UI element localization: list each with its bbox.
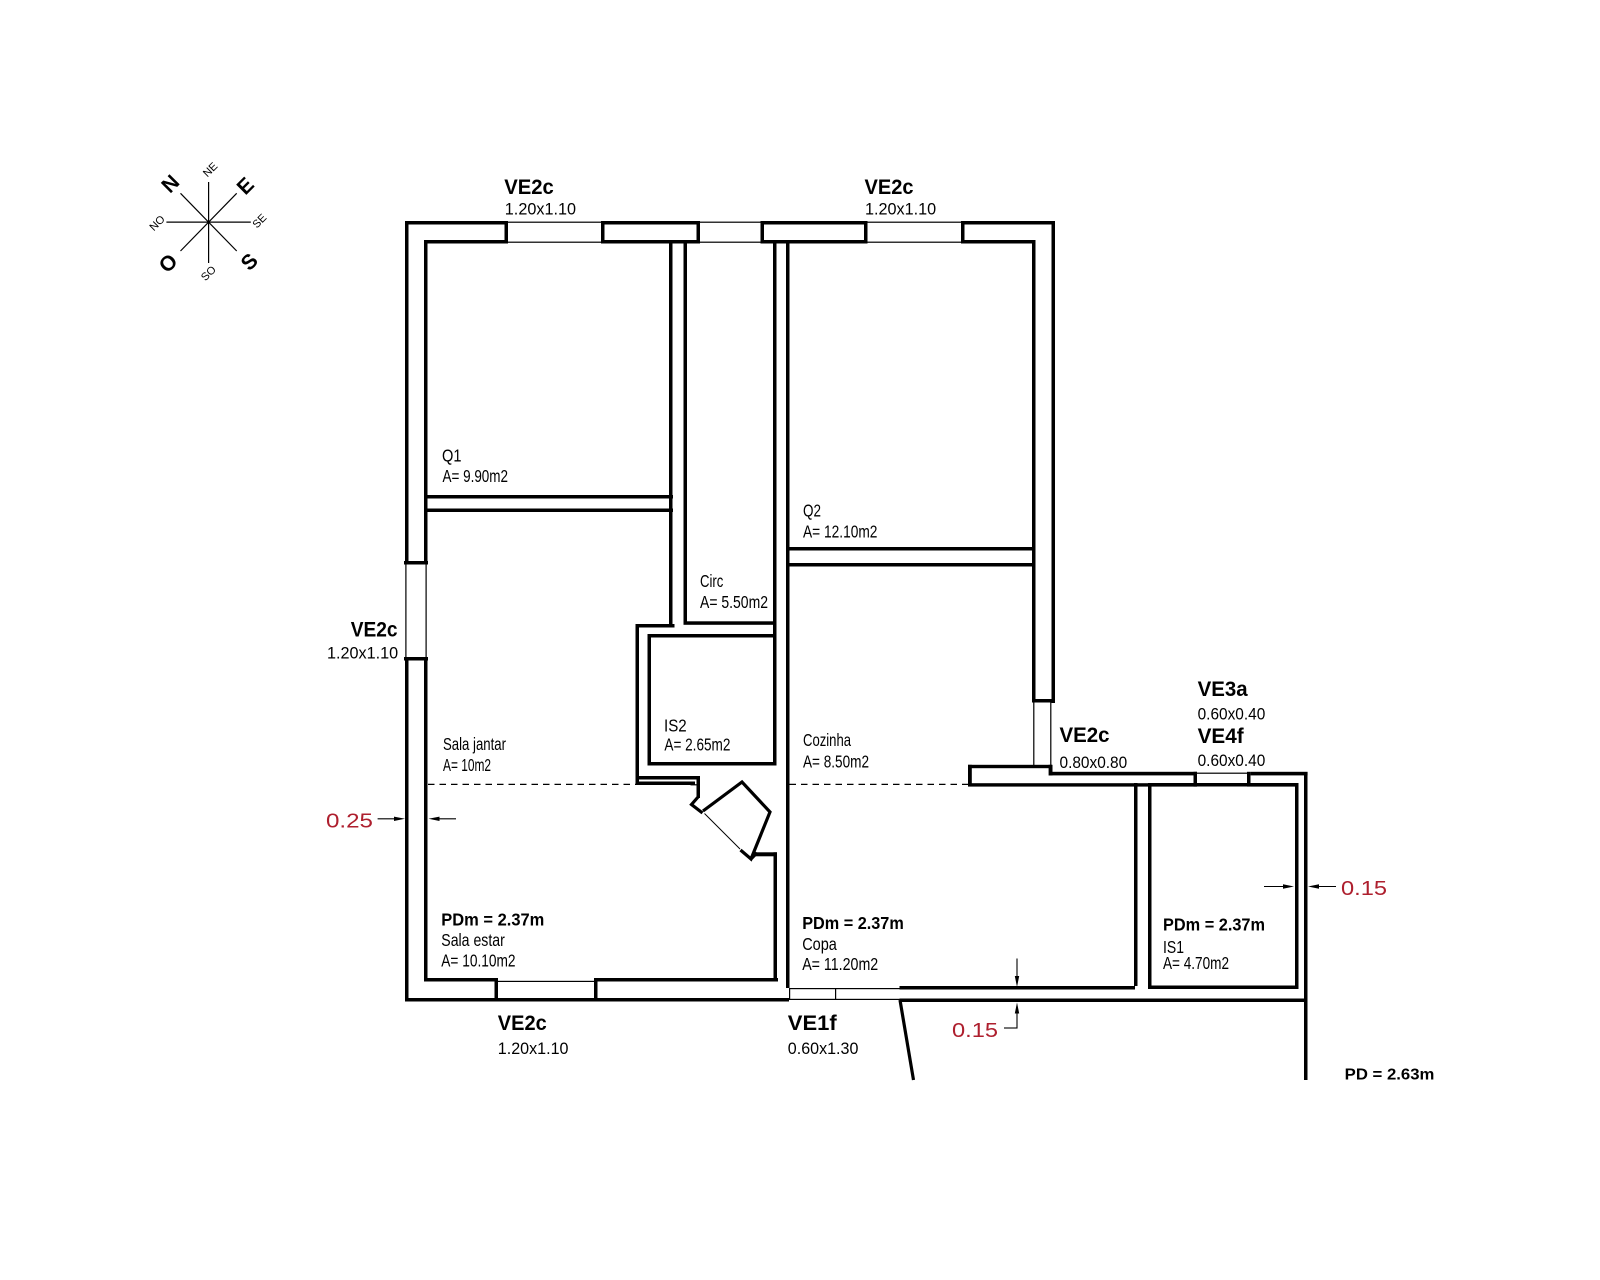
svg-text:A= 8.50m2: A= 8.50m2 bbox=[803, 752, 869, 772]
svg-text:A= 5.50m2: A= 5.50m2 bbox=[700, 592, 768, 612]
svg-text:VE2c: VE2c bbox=[1060, 724, 1110, 747]
svg-text:0.80x0.80: 0.80x0.80 bbox=[1060, 753, 1128, 772]
svg-text:VE1f: VE1f bbox=[788, 1012, 838, 1035]
svg-text:0.60x1.30: 0.60x1.30 bbox=[788, 1039, 859, 1058]
svg-text:0.60x0.40: 0.60x0.40 bbox=[1198, 751, 1266, 770]
svg-text:IS2: IS2 bbox=[664, 716, 687, 736]
svg-text:1.20x1.10: 1.20x1.10 bbox=[498, 1039, 569, 1058]
svg-text:0.60x0.40: 0.60x0.40 bbox=[1198, 705, 1266, 724]
svg-text:PDm = 2.37m: PDm = 2.37m bbox=[802, 913, 904, 933]
svg-text:VE3a: VE3a bbox=[1198, 678, 1248, 701]
svg-text:A= 11.20m2: A= 11.20m2 bbox=[802, 954, 878, 974]
svg-text:1.20x1.10: 1.20x1.10 bbox=[865, 200, 936, 219]
svg-text:VE2c: VE2c bbox=[504, 176, 554, 199]
svg-text:Sala jantar: Sala jantar bbox=[443, 734, 506, 754]
svg-text:A= 9.90m2: A= 9.90m2 bbox=[443, 466, 509, 486]
svg-text:Q1: Q1 bbox=[442, 446, 462, 466]
svg-text:VE2c: VE2c bbox=[498, 1012, 547, 1035]
svg-text:VE2c: VE2c bbox=[351, 619, 398, 642]
svg-text:VE4f: VE4f bbox=[1198, 725, 1245, 748]
svg-text:A= 12.10m2: A= 12.10m2 bbox=[803, 522, 877, 542]
svg-text:Cozinha: Cozinha bbox=[803, 730, 851, 750]
svg-text:0.25: 0.25 bbox=[326, 811, 373, 833]
svg-text:PDm = 2.37m: PDm = 2.37m bbox=[441, 910, 544, 930]
svg-text:VE2c: VE2c bbox=[865, 176, 914, 199]
svg-text:1.20x1.10: 1.20x1.10 bbox=[505, 200, 576, 219]
svg-text:PDm = 2.37m: PDm = 2.37m bbox=[1163, 915, 1265, 935]
svg-text:Q2: Q2 bbox=[803, 501, 821, 521]
svg-text:Copa: Copa bbox=[802, 934, 837, 954]
svg-text:Circ: Circ bbox=[700, 571, 723, 591]
svg-text:0.15: 0.15 bbox=[1341, 878, 1387, 900]
svg-text:A= 2.65m2: A= 2.65m2 bbox=[664, 735, 730, 755]
svg-text:A= 10.10m2: A= 10.10m2 bbox=[441, 950, 515, 970]
svg-text:0.15: 0.15 bbox=[952, 1020, 998, 1042]
svg-text:A= 4.70m2: A= 4.70m2 bbox=[1163, 953, 1229, 973]
svg-text:Sala estar: Sala estar bbox=[441, 930, 505, 950]
svg-text:PD = 2.63m: PD = 2.63m bbox=[1345, 1067, 1435, 1084]
svg-text:1.20x1.10: 1.20x1.10 bbox=[327, 644, 398, 663]
svg-text:A= 10m2: A= 10m2 bbox=[443, 755, 491, 775]
